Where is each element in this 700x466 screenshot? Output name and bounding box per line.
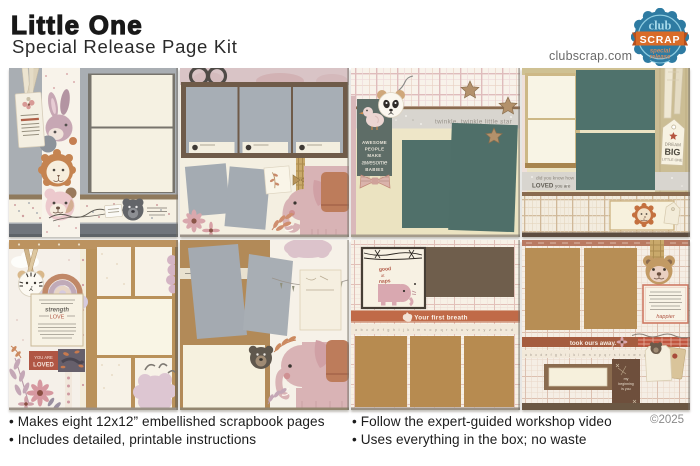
- svg-text:took ours away.: took ours away.: [570, 340, 617, 347]
- svg-text:SCRAP: SCRAP: [640, 34, 681, 46]
- svg-text:good: good: [379, 266, 392, 273]
- svg-text:MAKE: MAKE: [367, 153, 381, 158]
- svg-text:LOVED you are: LOVED you are: [532, 183, 571, 190]
- svg-text:strength: strength: [45, 308, 69, 314]
- svg-text:YOU ARE: YOU ARE: [34, 355, 53, 360]
- svg-text:PEOPLE: PEOPLE: [365, 147, 385, 152]
- svg-text:is you: is you: [621, 387, 630, 391]
- svg-text:BABIES: BABIES: [365, 167, 383, 172]
- svg-text:abcdefghijklmnopqrstuvwxyzabcd: abcdefghijklmnopqrstuvwxyzabcd: [355, 328, 517, 332]
- svg-text:AWESOME: AWESOME: [362, 140, 387, 145]
- svg-text:LOVE: LOVE: [50, 315, 65, 321]
- svg-text:did you know how: did you know how: [536, 176, 575, 182]
- svg-text:my: my: [624, 377, 629, 381]
- svg-text:awesome: awesome: [362, 161, 388, 167]
- svg-text:BIG: BIG: [664, 147, 681, 158]
- svg-text:club: club: [649, 19, 672, 33]
- svg-text:naps: naps: [379, 278, 391, 285]
- svg-text:happier: happier: [656, 314, 676, 320]
- svg-text:LOVED: LOVED: [33, 363, 54, 369]
- svg-text:Your first breath: Your first breath: [414, 314, 468, 321]
- svg-text:release: release: [650, 55, 671, 61]
- svg-text:beginning: beginning: [618, 382, 634, 386]
